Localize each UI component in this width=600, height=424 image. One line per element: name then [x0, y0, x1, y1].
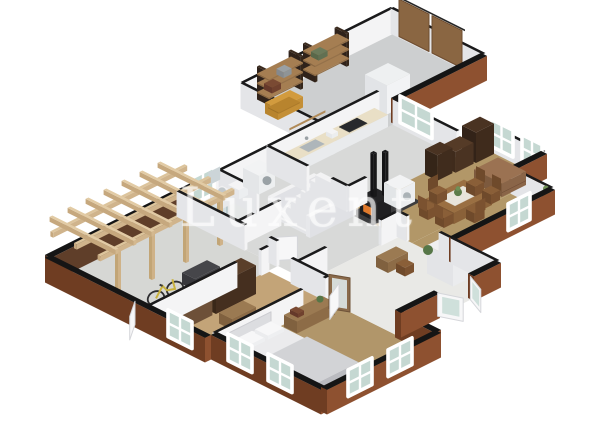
faucet	[305, 136, 309, 140]
entry-dining-wall	[397, 210, 410, 242]
house-3d-floorplan: Luxent	[0, 0, 600, 424]
hutch-cabinet	[425, 142, 452, 181]
stove-chimney	[370, 151, 376, 198]
dresser-plant	[317, 296, 324, 303]
floorplan-canvas	[0, 0, 600, 424]
table-plant	[456, 186, 461, 191]
pergola-post	[149, 231, 155, 280]
closet-divider	[259, 245, 270, 276]
patio-hall-wall	[269, 236, 280, 267]
boiler-door	[403, 192, 411, 200]
entry-plant	[423, 245, 433, 255]
french-door	[438, 293, 464, 322]
washer-door	[263, 176, 272, 185]
